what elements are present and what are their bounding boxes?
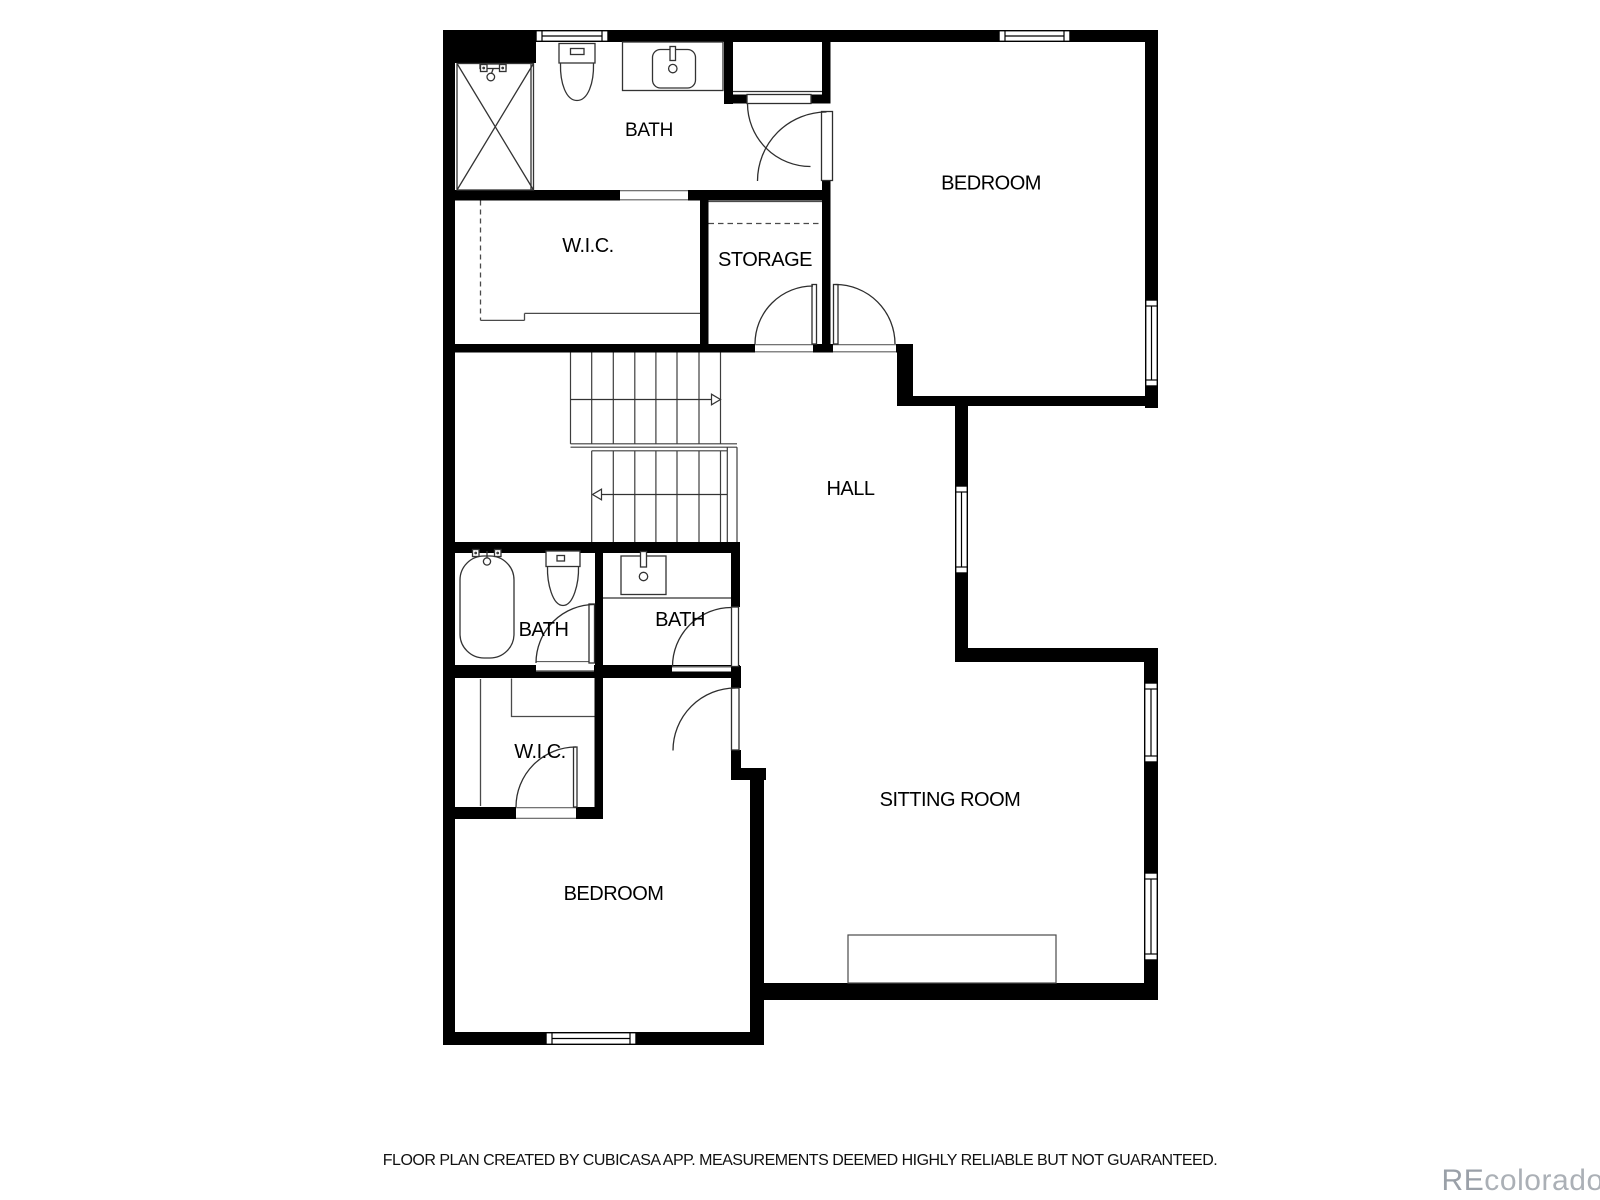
svg-text:STORAGE: STORAGE	[718, 249, 812, 271]
svg-text:BATH: BATH	[625, 120, 673, 141]
svg-text:BEDROOM: BEDROOM	[941, 173, 1041, 195]
svg-text:REcolorado: REcolorado	[1442, 1164, 1600, 1197]
svg-text:W.I.C.: W.I.C.	[562, 235, 613, 257]
svg-text:SITTING ROOM: SITTING ROOM	[880, 789, 1021, 811]
svg-text:W.I.C.: W.I.C.	[514, 741, 565, 763]
svg-text:BATH: BATH	[655, 609, 705, 631]
svg-text:BEDROOM: BEDROOM	[564, 883, 664, 905]
svg-text:HALL: HALL	[826, 478, 874, 500]
svg-text:BATH: BATH	[519, 619, 569, 641]
svg-text:FLOOR PLAN CREATED BY CUBICASA: FLOOR PLAN CREATED BY CUBICASA APP. MEAS…	[383, 1152, 1217, 1169]
